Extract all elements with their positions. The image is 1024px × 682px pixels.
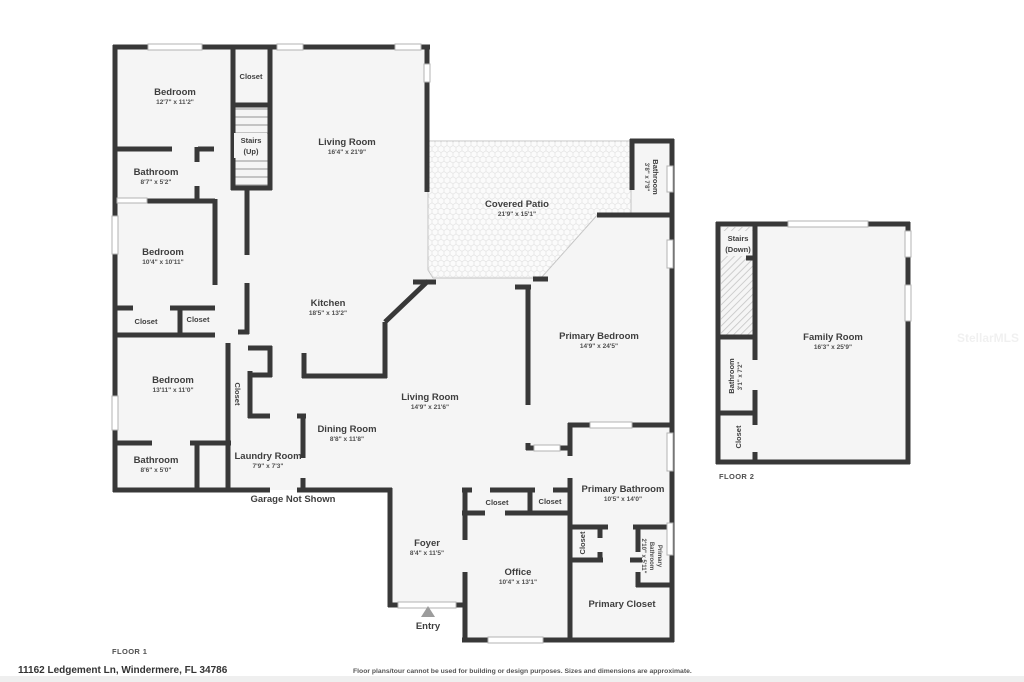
stairs-up-label: Stairs bbox=[241, 136, 262, 145]
room-label-closet-c: Closet bbox=[486, 498, 509, 507]
window bbox=[398, 602, 456, 608]
room-label-office: Office bbox=[505, 567, 532, 578]
footer-strip bbox=[0, 676, 1024, 682]
room-dims-bedroom3: 13'11" x 11'0" bbox=[152, 387, 193, 394]
room-label-closet-hall: Closet bbox=[233, 383, 242, 406]
room-label-closet-e-group: Closet bbox=[578, 531, 587, 554]
room-dims-living-room-main: 14'9" x 21'6" bbox=[411, 404, 449, 411]
room-dims-foyer: 8'4" x 11'5" bbox=[410, 550, 444, 557]
room-label-laundry-room: Laundry Room bbox=[234, 451, 301, 462]
window bbox=[277, 44, 303, 50]
room-label-bedroom2: Bedroom bbox=[142, 247, 184, 258]
address-text: 11162 Ledgement Ln, Windermere, FL 34786 bbox=[18, 665, 228, 676]
room-label-floor2-closet-group: Closet bbox=[734, 425, 743, 448]
floorplan-page: Bedroom 12'7" x 11'2" Closet Stairs (Up)… bbox=[0, 0, 1024, 682]
room-dims-kitchen: 18'5" x 13'2" bbox=[309, 310, 347, 317]
room-dims-office: 10'4" x 13'1" bbox=[499, 579, 537, 586]
floor1-plan: Bedroom 12'7" x 11'2" Closet Stairs (Up)… bbox=[112, 44, 674, 656]
window bbox=[488, 637, 543, 643]
room-label-covered-patio: Covered Patio bbox=[485, 199, 549, 210]
room-label-closet-e: Closet bbox=[578, 531, 587, 554]
room-label-bathroom1: Bathroom bbox=[134, 167, 179, 178]
room-dims-bedroom2: 10'4" x 10'11" bbox=[142, 259, 183, 266]
room-dims-family-room: 16'3" x 25'9" bbox=[814, 344, 852, 351]
window bbox=[667, 166, 673, 192]
window bbox=[395, 44, 421, 50]
room-dims-laundry-room: 7'9" x 7'3" bbox=[253, 463, 284, 470]
room-label-patio-bathroom: Bathroom bbox=[651, 159, 660, 195]
window bbox=[117, 198, 147, 203]
room-dims-primary-bedroom: 14'9" x 24'5" bbox=[580, 343, 618, 350]
room-dims-bathroom1: 8'7" x 5'2" bbox=[141, 179, 172, 186]
window bbox=[112, 396, 118, 430]
room-label-primary-bathroom-small-1: Primary bbox=[656, 545, 662, 568]
window bbox=[905, 231, 911, 257]
disclaimer-text: Floor plans/tour cannot be used for buil… bbox=[353, 668, 692, 675]
room-label-primary-bathroom: Primary Bathroom bbox=[582, 484, 665, 495]
room-label-floor2-bathroom: Bathroom bbox=[727, 358, 736, 394]
window bbox=[534, 445, 560, 451]
floor2-plan: Stairs (Down) Family Room 16'3" x 25'9" … bbox=[716, 221, 911, 481]
window bbox=[667, 433, 673, 471]
room-label-kitchen: Kitchen bbox=[311, 298, 346, 309]
room-label-primary-bedroom: Primary Bedroom bbox=[559, 331, 639, 342]
window bbox=[590, 422, 632, 428]
room-label-floor2-bathroom-group: Bathroom 3'1" x 7'2" bbox=[727, 358, 744, 394]
room-label-bathroom2: Bathroom bbox=[134, 455, 179, 466]
room-dims-primary-bathroom: 10'5" x 14'0" bbox=[604, 496, 642, 503]
room-label-bedroom1: Bedroom bbox=[154, 87, 196, 98]
window bbox=[788, 221, 868, 227]
window bbox=[424, 64, 430, 82]
room-label-foyer: Foyer bbox=[414, 538, 440, 549]
room-label-living-room-main: Living Room bbox=[401, 392, 459, 403]
room-dims-patio-bathroom: 3'8" x 7'8" bbox=[643, 163, 649, 192]
room-dims-living-room-upper: 16'4" x 21'9" bbox=[328, 149, 366, 156]
room-label-closet-a: Closet bbox=[135, 317, 158, 326]
window bbox=[667, 240, 673, 268]
room-label-family-room: Family Room bbox=[803, 332, 863, 343]
room-label-living-room-upper: Living Room bbox=[318, 137, 376, 148]
room-label-dining-room: Dining Room bbox=[317, 424, 376, 435]
watermark: StellarMLS bbox=[957, 331, 1019, 345]
garage-note: Garage Not Shown bbox=[251, 494, 336, 505]
stairs-down-label: Stairs bbox=[728, 234, 749, 243]
floorplan-canvas: Bedroom 12'7" x 11'2" Closet Stairs (Up)… bbox=[0, 0, 1024, 682]
entry-label: Entry bbox=[416, 621, 441, 632]
room-dims-bedroom1: 12'7" x 11'2" bbox=[156, 99, 194, 106]
room-label-bedroom3: Bedroom bbox=[152, 375, 194, 386]
window bbox=[905, 285, 911, 321]
room-label-primary-bathroom-small-2: Bathroom bbox=[648, 542, 654, 570]
room-dims-dining-room: 8'8" x 11'8" bbox=[330, 436, 364, 443]
room-label-patio-bathroom-group: Bathroom 3'8" x 7'8" bbox=[643, 159, 660, 195]
room-dims-covered-patio: 21'9" x 15'1" bbox=[498, 211, 536, 218]
room-label-closet-hall-group: Closet bbox=[233, 383, 242, 406]
floor2-caption: FLOOR 2 bbox=[719, 472, 754, 481]
room-label-closet-b: Closet bbox=[187, 315, 210, 324]
window bbox=[667, 523, 673, 555]
room-dims-floor2-bathroom: 3'1" x 7'2" bbox=[738, 362, 744, 391]
room-dims-primary-bathroom-small: 2'10" x 5'11" bbox=[640, 539, 646, 574]
room-label-primary-closet: Primary Closet bbox=[588, 599, 656, 610]
stairs-down-direction: (Down) bbox=[725, 245, 751, 254]
room-dims-bathroom2: 8'6" x 5'0" bbox=[141, 467, 172, 474]
window bbox=[148, 44, 202, 50]
floor1-caption: FLOOR 1 bbox=[112, 647, 147, 656]
room-label-closet-d: Closet bbox=[539, 497, 562, 506]
room-label-closet-top: Closet bbox=[240, 72, 263, 81]
window bbox=[112, 216, 118, 254]
stairs-up-direction: (Up) bbox=[244, 147, 259, 156]
room-label-floor2-closet: Closet bbox=[734, 425, 743, 448]
